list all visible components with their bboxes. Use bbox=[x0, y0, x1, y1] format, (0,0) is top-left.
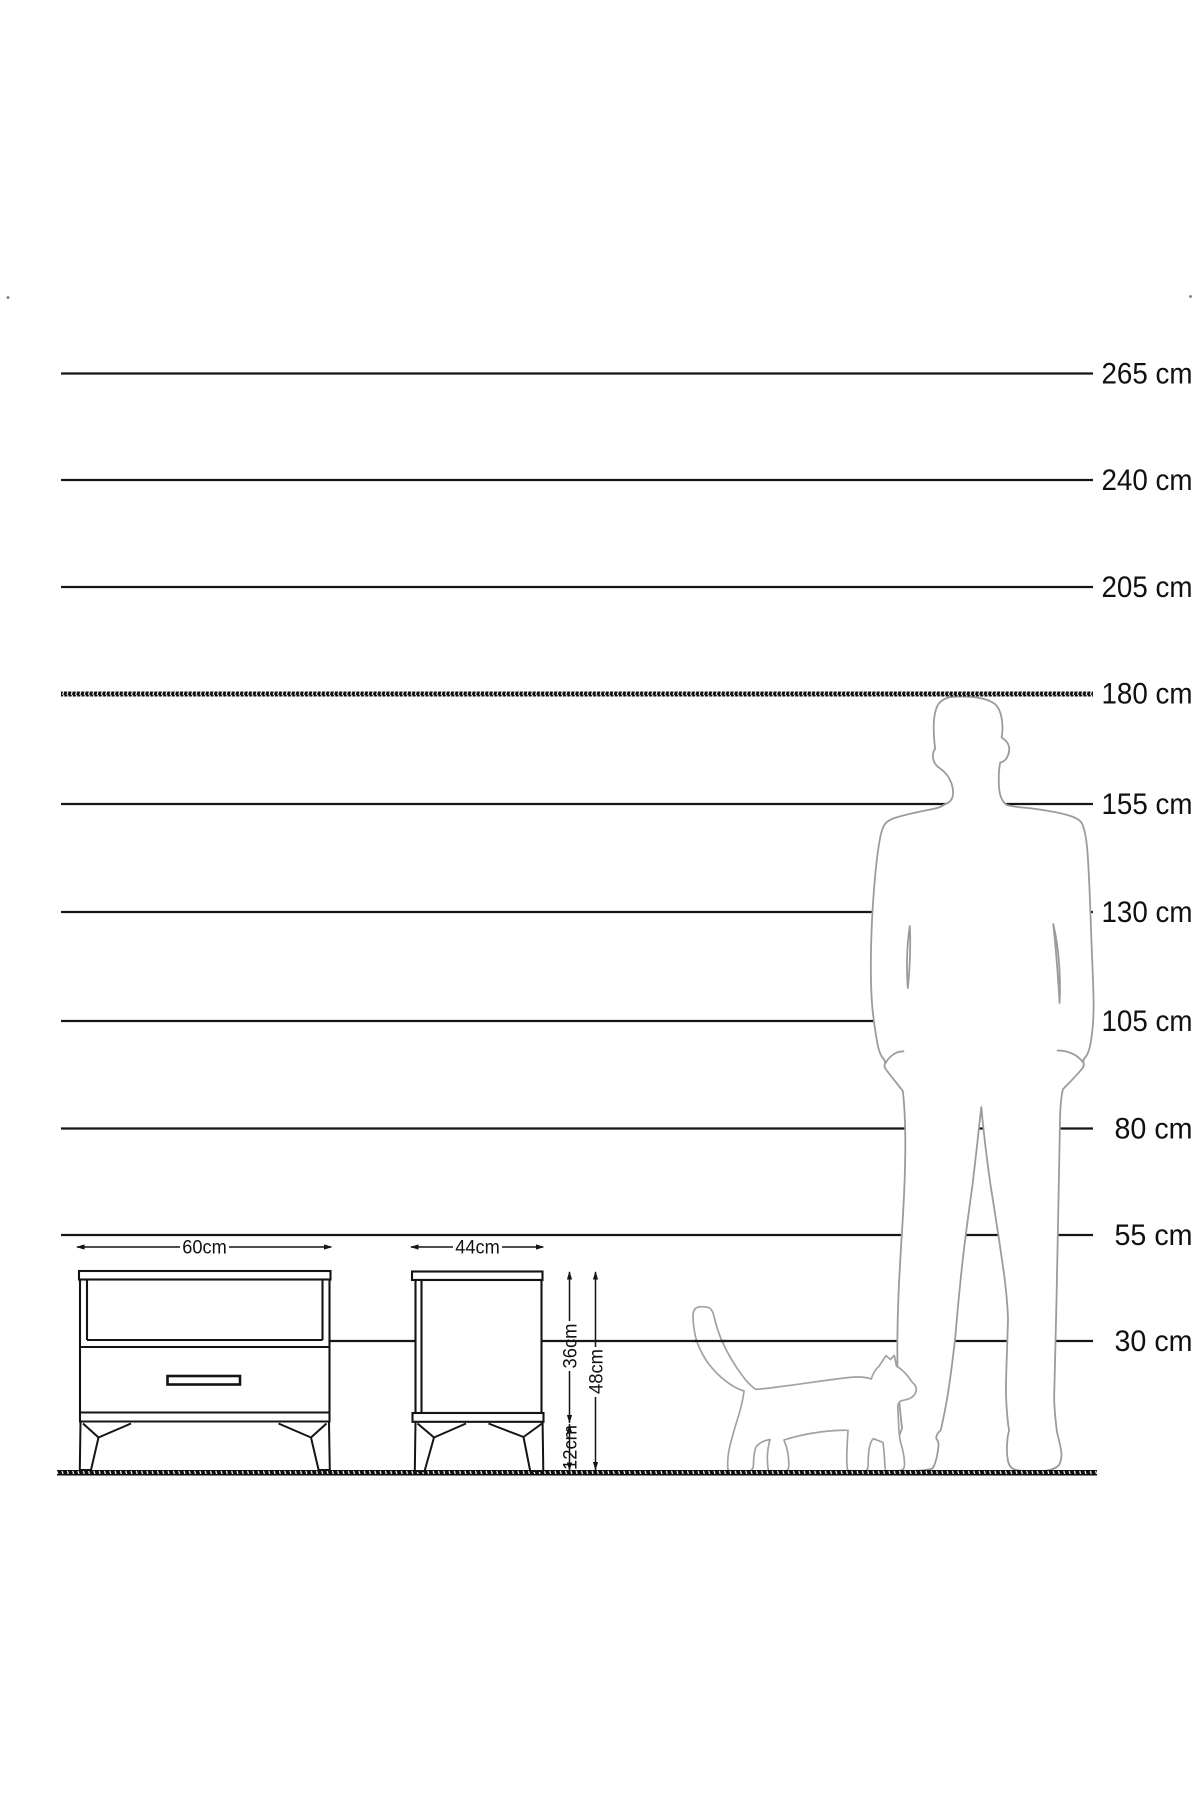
svg-text:48cm: 48cm bbox=[587, 1349, 608, 1394]
svg-text:30 cm: 30 cm bbox=[1115, 1325, 1193, 1358]
svg-text:105 cm: 105 cm bbox=[1102, 1005, 1193, 1038]
svg-text:265 cm: 265 cm bbox=[1102, 358, 1193, 391]
svg-text:240 cm: 240 cm bbox=[1102, 464, 1193, 497]
svg-text:155 cm: 155 cm bbox=[1102, 788, 1193, 821]
svg-text:55 cm: 55 cm bbox=[1115, 1219, 1193, 1252]
svg-text:180 cm: 180 cm bbox=[1102, 678, 1193, 711]
svg-text:44cm: 44cm bbox=[455, 1238, 500, 1259]
svg-text:12cm: 12cm bbox=[561, 1425, 582, 1470]
svg-text:205 cm: 205 cm bbox=[1102, 571, 1193, 604]
svg-text:36cm: 36cm bbox=[561, 1324, 582, 1369]
svg-text:80 cm: 80 cm bbox=[1115, 1113, 1193, 1146]
svg-text:60cm: 60cm bbox=[182, 1238, 227, 1259]
svg-text:130 cm: 130 cm bbox=[1102, 896, 1193, 929]
